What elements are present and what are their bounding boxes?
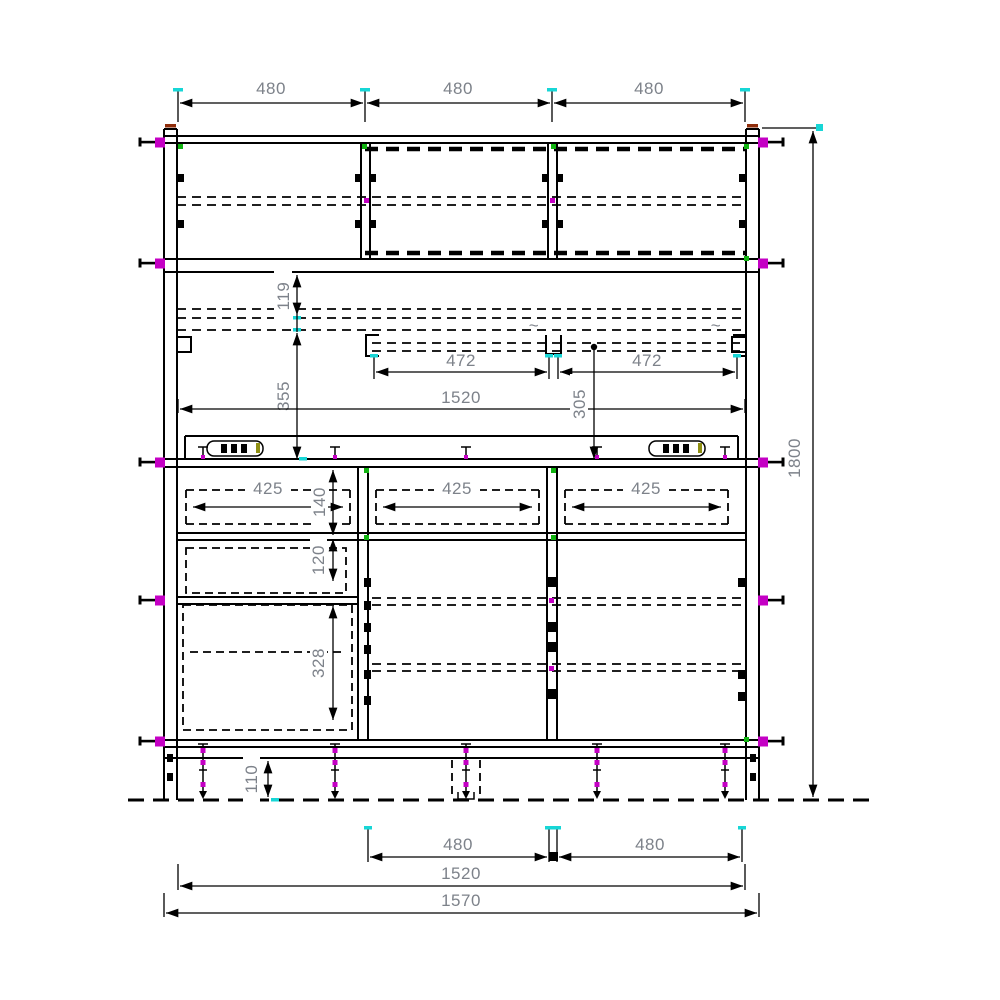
outlet-symbol-left [207, 441, 263, 456]
dim-text-472-right: 472 [632, 351, 662, 370]
right-side-panel [746, 129, 759, 800]
dim-bottom-1520: 1520 [178, 864, 745, 890]
dim-text-480-bottom-left: 480 [443, 835, 473, 854]
break-mark-right: ~ [711, 316, 721, 335]
dim-text-480-top-2: 480 [443, 79, 473, 98]
upper-shelf-dashed [177, 197, 746, 205]
counter-carcass-band [164, 459, 759, 467]
right-wall-bracket [732, 337, 746, 352]
cad-drawing-page: ~ ~ [0, 0, 1000, 1000]
dim-text-355: 355 [274, 381, 293, 411]
fasteners [139, 124, 785, 799]
dim-text-425-left: 425 [253, 479, 283, 498]
foot [331, 758, 339, 799]
left-side-panel [164, 129, 177, 800]
dim-top-widths: 480 480 480 [173, 79, 750, 122]
dim-text-305: 305 [570, 389, 589, 419]
drawer-row-divider [177, 533, 746, 540]
dim-text-472-left: 472 [446, 351, 476, 370]
dim-text-110: 110 [242, 765, 261, 794]
top-panel [164, 136, 759, 143]
foot [593, 758, 601, 799]
joint-grips [139, 138, 785, 747]
dim-text-1520-inner: 1520 [441, 388, 481, 407]
dim-toe-space: 110 [242, 754, 279, 804]
hanger-hook-left [366, 335, 379, 356]
lower-hardware-pins [364, 577, 745, 705]
hanger-rail-dashed [372, 343, 740, 351]
dim-text-480-bottom-right: 480 [635, 835, 665, 854]
dim-text-1800: 1800 [785, 438, 804, 478]
dim-text-1520-bottom: 1520 [441, 864, 481, 883]
dim-text-480-top-3: 480 [634, 79, 664, 98]
dim-text-120: 120 [309, 545, 328, 575]
adjustable-feet [199, 758, 729, 799]
dim-text-480-top-1: 480 [256, 79, 286, 98]
outlet-symbol-right [649, 441, 705, 456]
foot [721, 758, 729, 799]
dim-text-425-right: 425 [631, 479, 661, 498]
cabinet-elevation-svg: ~ ~ [0, 0, 1000, 1000]
dim-text-119: 119 [274, 282, 293, 311]
node-marks [165, 124, 758, 742]
dim-rail-spans: 472 472 [370, 351, 741, 379]
left-col-divider [177, 597, 358, 604]
dim-305: 305 [570, 350, 594, 459]
foot [462, 758, 470, 799]
dim-119-355: 119 355 [274, 270, 307, 461]
mid-dashed-rails [177, 309, 746, 330]
dim-text-140: 140 [310, 487, 329, 517]
dim-overall-height: 1800 [762, 124, 823, 797]
upper-shelf-pins [178, 174, 745, 228]
lower-divider-2 [547, 467, 557, 740]
dim-inner-1520: 1520 [178, 388, 745, 413]
upper-bottom-panel [164, 259, 759, 272]
dim-text-1570: 1570 [441, 891, 481, 910]
dim-bottom-480: 480 480 [364, 826, 746, 862]
break-mark-left: ~ [529, 316, 539, 335]
left-wall-bracket [177, 337, 191, 352]
dim-drawer-widths: 425 425 425 [193, 479, 721, 507]
rail-node-dot [591, 344, 597, 350]
dim-text-425-mid: 425 [442, 479, 472, 498]
dim-text-328: 328 [309, 648, 328, 678]
dim-overall-1570: 1570 [164, 891, 759, 917]
foot [199, 758, 207, 799]
